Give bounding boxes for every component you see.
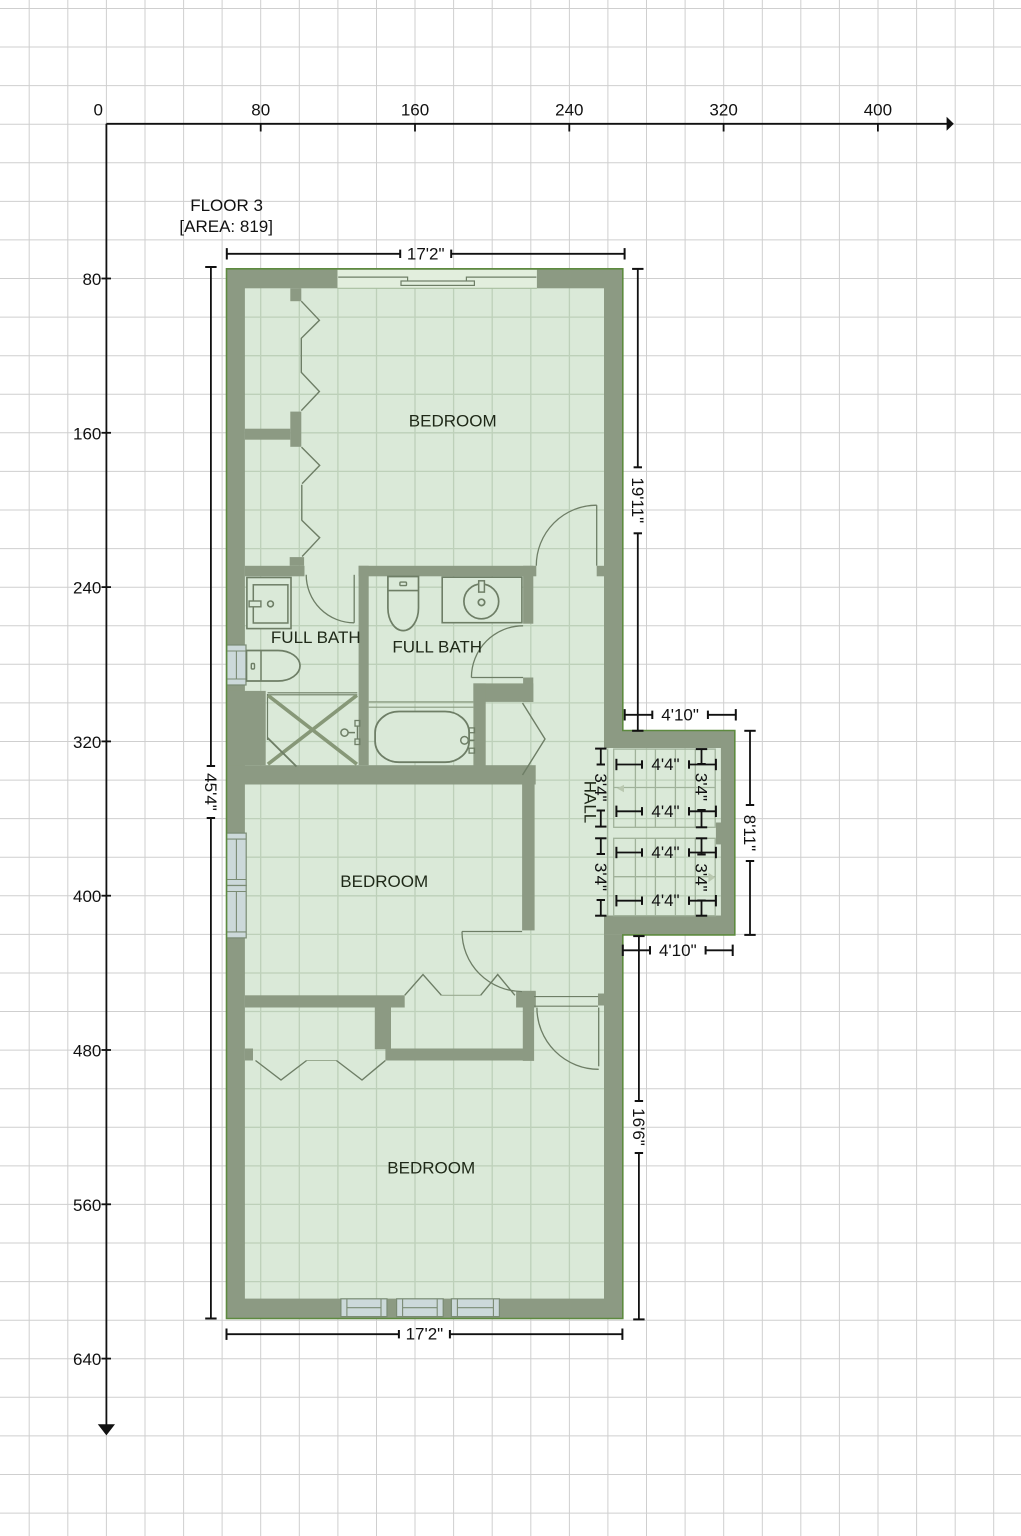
svg-text:BEDROOM: BEDROOM [409,411,497,430]
svg-text:45'4": 45'4" [201,773,220,811]
svg-text:4'10": 4'10" [661,705,699,724]
svg-text:4'4": 4'4" [651,755,679,774]
svg-text:8'11": 8'11" [740,815,759,851]
svg-text:320: 320 [709,101,737,120]
svg-text:160: 160 [73,424,101,443]
svg-text:FLOOR 3: FLOOR 3 [190,196,263,215]
svg-text:16'6": 16'6" [629,1108,648,1146]
svg-text:19'11": 19'11" [628,477,647,523]
svg-text:[AREA: 819]: [AREA: 819] [179,217,273,236]
svg-text:160: 160 [401,101,429,120]
svg-text:240: 240 [555,101,583,120]
svg-text:400: 400 [864,101,892,120]
svg-text:BEDROOM: BEDROOM [340,872,428,891]
svg-text:17'2": 17'2" [407,244,445,263]
svg-text:4'4": 4'4" [651,891,679,910]
svg-text:560: 560 [73,1196,101,1215]
svg-text:640: 640 [73,1350,101,1369]
svg-text:80: 80 [82,270,101,289]
svg-text:4'4": 4'4" [651,843,679,862]
svg-text:FULL BATH: FULL BATH [271,628,361,647]
svg-text:3'4": 3'4" [591,863,610,891]
svg-text:320: 320 [73,733,101,752]
svg-text:3'4": 3'4" [692,773,711,801]
svg-text:17'2": 17'2" [406,1325,444,1344]
svg-text:FULL BATH: FULL BATH [392,638,482,657]
svg-text:0: 0 [93,101,102,120]
svg-text:3'4": 3'4" [692,863,711,891]
svg-text:4'4": 4'4" [651,802,679,821]
svg-text:80: 80 [251,101,270,120]
svg-text:4'10": 4'10" [659,941,697,960]
svg-text:400: 400 [73,887,101,906]
svg-text:3'4": 3'4" [591,773,610,801]
svg-text:240: 240 [73,579,101,598]
svg-text:BEDROOM: BEDROOM [387,1159,475,1178]
svg-text:480: 480 [73,1042,101,1061]
